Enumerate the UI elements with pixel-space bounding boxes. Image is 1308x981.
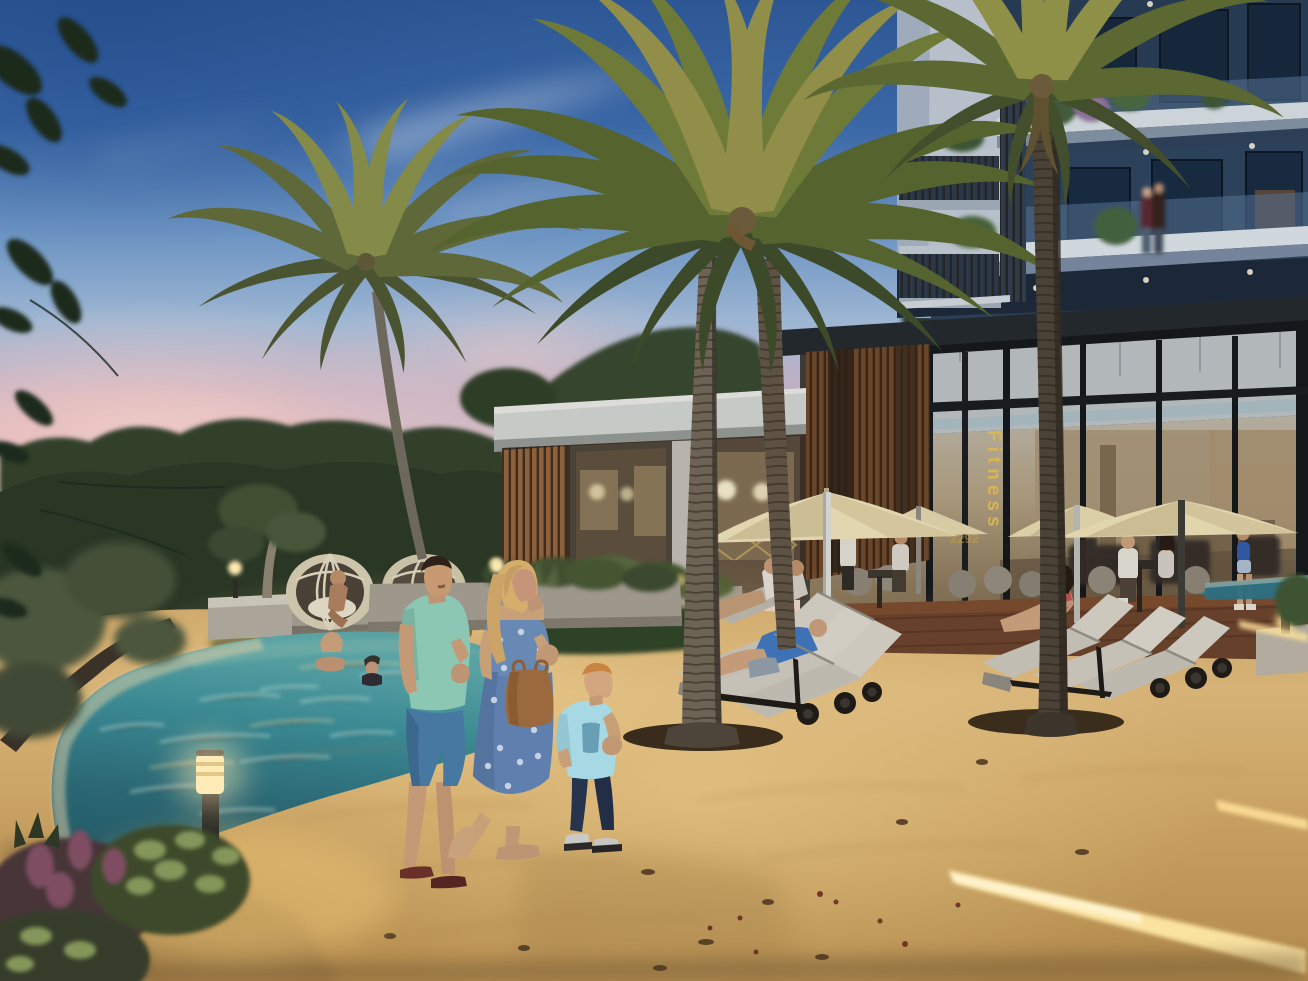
svg-text:Fitness: Fitness <box>983 430 1004 532</box>
